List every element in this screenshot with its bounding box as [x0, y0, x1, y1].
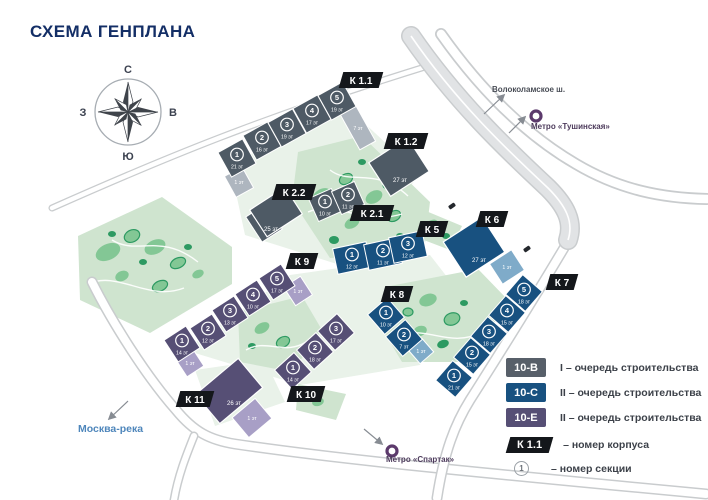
section-floors: 17 эт: [271, 289, 284, 295]
section-number: 1: [452, 371, 456, 380]
legend-swatch: 10-Е: [506, 408, 546, 427]
building-floors: 27 эт: [472, 258, 486, 264]
section-floors: 17 эт: [306, 121, 319, 127]
section-number: 2: [381, 246, 385, 255]
corpus-tag-label: К 10: [296, 390, 316, 401]
section-floors: 10 эт: [247, 305, 260, 311]
section-number: 1: [384, 308, 388, 317]
building-floors: 25 эт: [264, 227, 278, 233]
legend-section-row: 1 – номер секции: [506, 461, 706, 476]
legend-items: 10-ВI – очередь строительства10-СII – оч…: [506, 358, 706, 427]
corpus-tag-label: К 6: [485, 215, 500, 226]
section-number: 5: [275, 274, 279, 283]
corpus-tag-label: К 8: [390, 290, 405, 301]
section-floors: 10 эт: [319, 212, 332, 218]
section-number: 3: [487, 327, 491, 336]
section-floors: 14 эт: [287, 378, 300, 384]
legend-swatch: 10-В: [506, 358, 546, 377]
park-blob: [184, 244, 192, 250]
park-blob: [108, 231, 116, 237]
annex-floors: 1 эт: [247, 416, 257, 422]
corpus-tag-label: К 1.2: [395, 137, 418, 148]
section-number: 2: [313, 343, 317, 352]
section-floors: 11 эт: [377, 261, 389, 267]
legend-corpus-row: К 1.1 – номер корпуса: [506, 437, 706, 453]
building-floors: 26 эт: [227, 401, 241, 407]
annex-floors: 1 эт: [185, 361, 195, 367]
section-floors: 12 эт: [202, 339, 215, 345]
corpus-tag-k1_1: К 1.1: [339, 72, 384, 88]
corpus-tag-k2_1: К 2.1: [350, 205, 395, 221]
corpus-tag-label: К 2.2: [283, 188, 306, 199]
section-number: 1: [323, 197, 327, 206]
road: [174, 436, 194, 500]
park-blob: [403, 308, 413, 316]
section-floors: 15 эт: [466, 363, 479, 369]
legend-item: 10-ЕII – очередь строительства: [506, 408, 706, 427]
corpus-tag-sample: К 1.1: [506, 437, 554, 453]
section-number: 3: [285, 120, 289, 129]
section-number-badge-sample: 1: [514, 461, 529, 476]
corpus-tag-label: К 2.1: [361, 209, 384, 220]
section-number: 3: [406, 239, 410, 248]
section-floors: 17 эт: [330, 339, 343, 345]
compass-east: В: [169, 107, 177, 119]
section-floors: 14 эт: [176, 351, 189, 357]
section-floors: 12 эт: [346, 265, 359, 271]
section-floors: 12 эт: [402, 254, 415, 260]
corpus-tag-k10: К 10: [287, 386, 326, 402]
corpus-tag-k6: К 6: [476, 211, 509, 227]
section-floors: 10 эт: [380, 323, 393, 329]
section-number-sample: 1: [519, 464, 523, 473]
section-number: 3: [228, 306, 232, 315]
corpus-tag-label: К 9: [295, 257, 310, 268]
car-icon: [523, 245, 531, 252]
page-title: СХЕМА ГЕНПЛАНА: [30, 22, 195, 42]
section-floors: 21 эт: [448, 386, 461, 392]
section-number: 5: [335, 93, 339, 102]
metro-spartak-label: Метро «Спартак»: [386, 455, 455, 464]
legend-swatch: 10-С: [506, 383, 546, 402]
section-floors: 16 эт: [256, 148, 269, 154]
corpus-tag-k7: К 7: [546, 274, 579, 290]
legend: 10-ВI – очередь строительства10-СII – оч…: [506, 358, 706, 482]
compass-north: С: [124, 64, 132, 76]
annex-floors: 1 эт: [234, 180, 244, 186]
corpus-tag-label: К 7: [555, 278, 570, 289]
section-floors: 19 эт: [331, 108, 344, 114]
legend-label: II – очередь строительства: [560, 387, 701, 399]
park: [78, 197, 232, 333]
section-number: 2: [346, 190, 350, 199]
section-floors: 15 эт: [501, 321, 514, 327]
section-number: 2: [206, 324, 210, 333]
corpus-tag-k11: К 11: [176, 391, 215, 407]
legend-section-label: – номер секции: [551, 463, 632, 475]
legend-item: 10-СII – очередь строительства: [506, 383, 706, 402]
compass-south: Ю: [122, 151, 133, 163]
section-number: 1: [350, 250, 354, 259]
compass-west: З: [80, 107, 87, 119]
section-floors: 19 эт: [281, 135, 294, 141]
park-blob: [460, 300, 468, 306]
pointer-arrow: [364, 429, 382, 444]
section-floors: 21 эт: [231, 165, 244, 171]
pointer-arrow: [109, 401, 128, 419]
section-floors: 11 эт: [342, 205, 354, 211]
annex-floors: 1 эт: [416, 349, 426, 355]
section-number: 2: [260, 133, 264, 142]
section-floors: 18 эт: [309, 358, 322, 364]
corpus-tag-k8: К 8: [381, 286, 414, 302]
corpus-tag-label: К 11: [185, 395, 205, 406]
section-floors: 13 эт: [224, 321, 237, 327]
section-number: 3: [334, 324, 338, 333]
park-area: [78, 197, 232, 333]
building-floors: 27 эт: [393, 178, 407, 184]
section-number: 1: [291, 363, 295, 372]
section-number: 5: [522, 285, 526, 294]
section-number: 2: [470, 348, 474, 357]
annex-floors: 1 эт: [502, 265, 512, 271]
metro-icon: [531, 111, 541, 121]
legend-label: II – очередь строительства: [560, 412, 701, 424]
park-blob: [329, 236, 339, 244]
park-blob: [358, 159, 366, 165]
section-number: 1: [180, 336, 184, 345]
genplan-scheme: 1 эт7 эт121 эт216 эт319 эт417 эт519 эт27…: [0, 0, 708, 500]
annex-floors: 1 эт: [293, 289, 303, 295]
corpus-tag-label: К 5: [425, 225, 440, 236]
highway-label: Волоколамское ш.: [492, 85, 565, 94]
corpus-tag-k9: К 9: [286, 253, 319, 269]
section-floors: 18 эт: [483, 342, 496, 348]
river-label: Москва-река: [78, 423, 143, 435]
corpus-tag-k2_2: К 2.2: [272, 184, 317, 200]
corpus-tag-label: К 1.1: [350, 76, 373, 87]
section-number: 1: [235, 150, 239, 159]
metro-tushinskaya-label: Метро «Тушинская»: [531, 122, 610, 131]
legend-item: 10-ВI – очередь строительства: [506, 358, 706, 377]
compass-rose: СЮЗВ: [80, 64, 177, 163]
legend-corpus-label: – номер корпуса: [563, 439, 649, 451]
car-icon: [448, 202, 456, 209]
section-floors: 7 эт: [399, 345, 409, 351]
section-number: 2: [402, 330, 406, 339]
corpus-tag-k5: К 5: [416, 221, 449, 237]
corpus-tag-k1_2: К 1.2: [384, 133, 429, 149]
legend-label: I – очередь строительства: [560, 362, 698, 374]
annex-floors: 7 эт: [353, 126, 363, 132]
section-floors: 18 эт: [518, 300, 531, 306]
park-blob: [139, 259, 147, 265]
corpus-tag-label: К 1.1: [517, 439, 542, 451]
